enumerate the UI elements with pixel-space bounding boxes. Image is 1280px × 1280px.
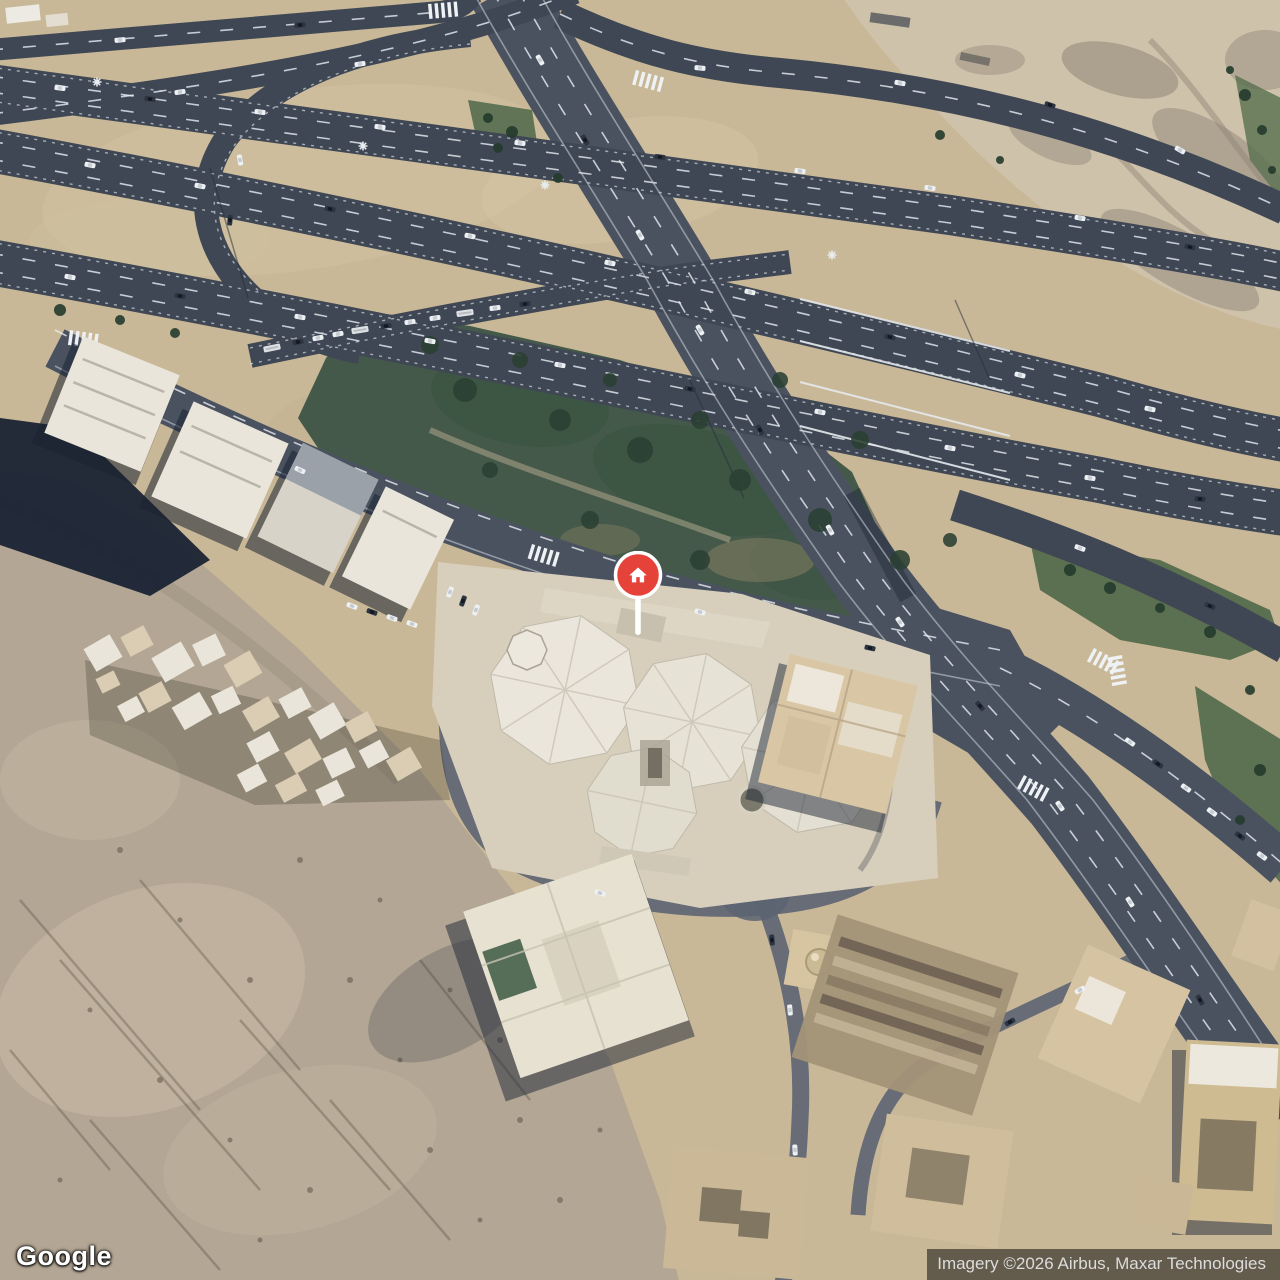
satellite-imagery <box>0 0 1280 1280</box>
location-pin-home[interactable] <box>610 551 666 639</box>
map-attribution: Imagery ©2026 Airbus, Maxar Technologies <box>927 1249 1280 1280</box>
map-viewport[interactable]: Google Imagery ©2026 Airbus, Maxar Techn… <box>0 0 1280 1280</box>
google-logo[interactable]: Google <box>16 1241 112 1272</box>
